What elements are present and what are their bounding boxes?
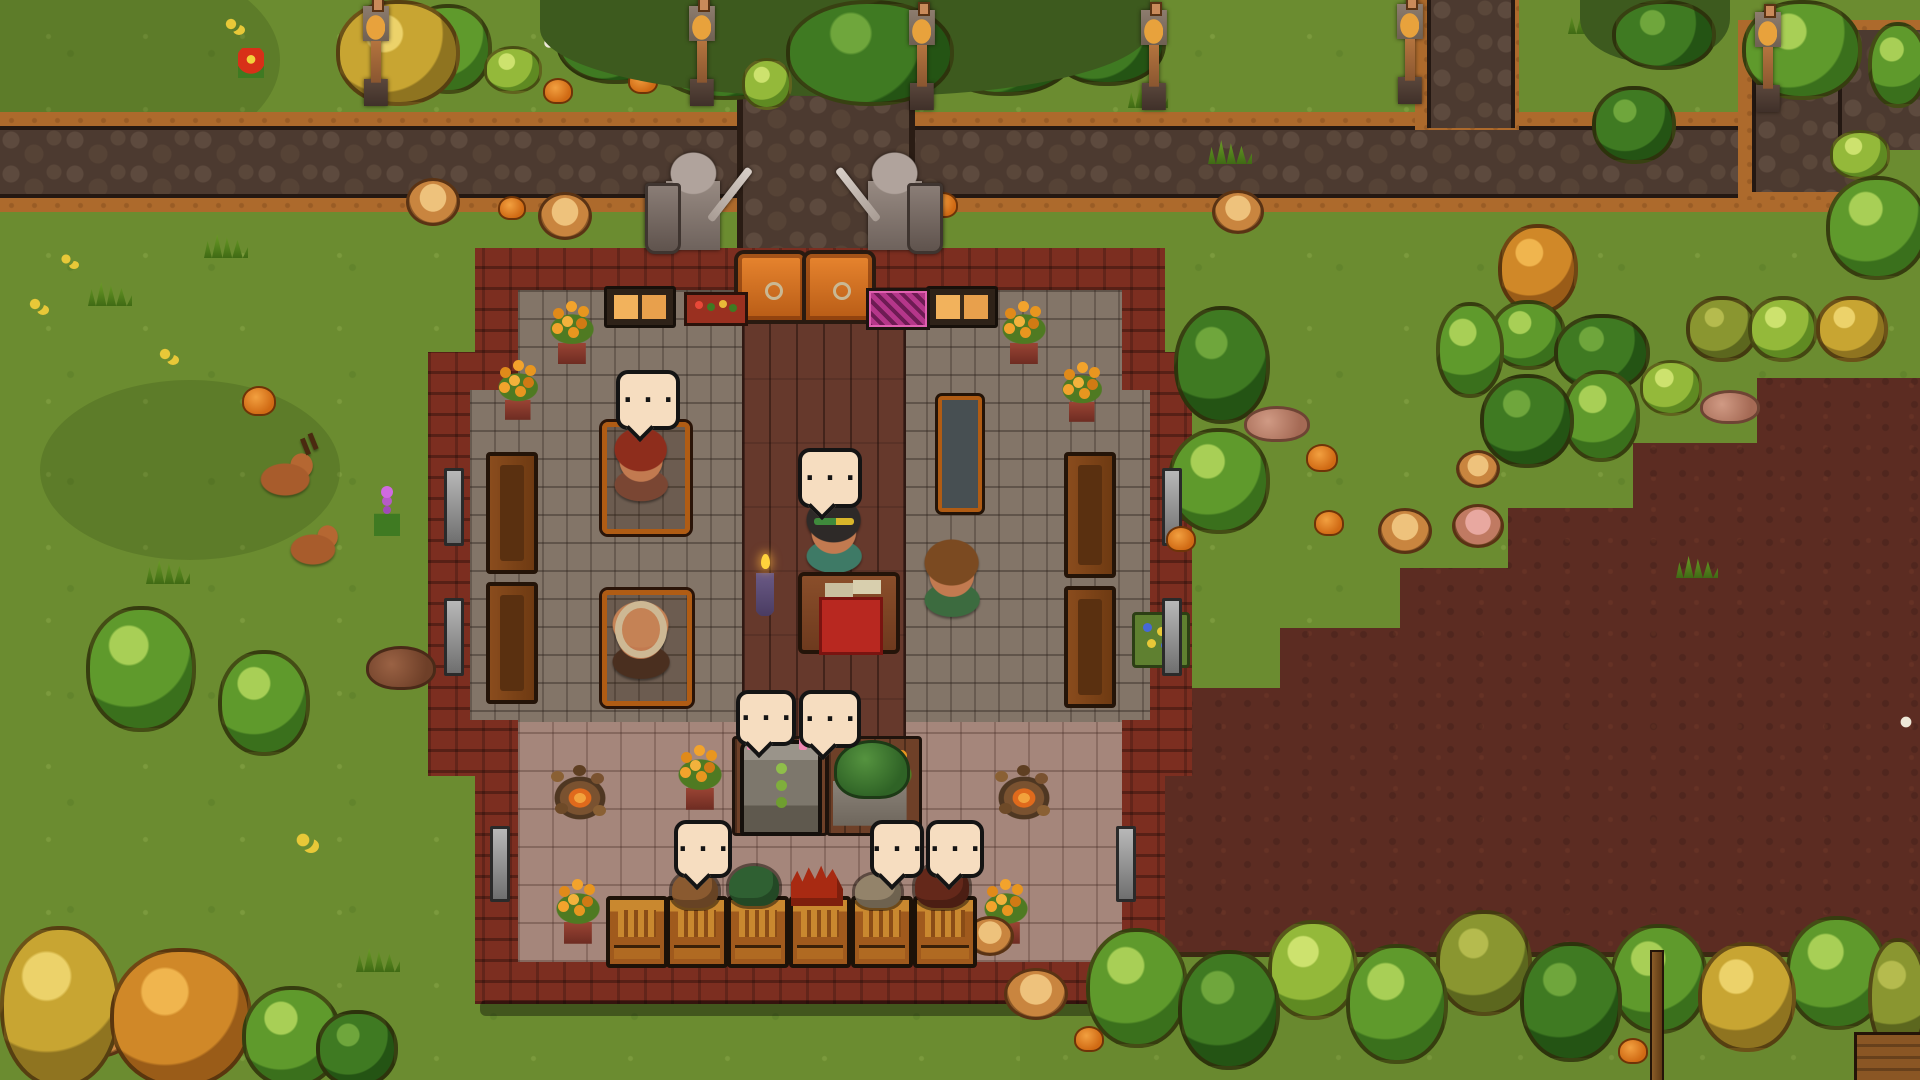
campfire	[542, 766, 618, 830]
mushroom	[543, 78, 573, 104]
bush	[1830, 130, 1890, 180]
customer-bald-npc[interactable]	[610, 598, 672, 682]
tree	[1520, 942, 1622, 1062]
tree-stump	[1378, 508, 1432, 554]
tree	[1816, 296, 1888, 362]
wood-pole	[1650, 950, 1664, 1080]
tree	[1178, 950, 1280, 1070]
speech-bubble: ...	[870, 820, 924, 878]
lamp-post	[904, 6, 940, 110]
entrance-door-right[interactable]	[802, 250, 876, 324]
speech-bubble: ...	[674, 820, 732, 878]
tavern-window	[926, 286, 998, 328]
flower-planter	[684, 292, 748, 326]
deer-fawn[interactable]	[284, 514, 346, 576]
shop-counter[interactable]	[798, 572, 900, 654]
grass-tuft	[356, 946, 400, 972]
tavern-chair[interactable]	[606, 896, 668, 968]
candelabra	[752, 556, 778, 616]
flower-pot	[1060, 360, 1104, 422]
tree	[1480, 374, 1574, 468]
tree-stump	[538, 192, 592, 240]
wall-bench[interactable]	[1064, 452, 1116, 578]
lamp-post	[1750, 8, 1786, 112]
tree	[1868, 22, 1920, 108]
tree	[110, 948, 252, 1080]
flower-pot	[676, 742, 724, 810]
sitting-patron-green[interactable]	[729, 866, 779, 906]
flower-pot	[554, 876, 602, 944]
tree	[1592, 86, 1676, 164]
lamp-post	[684, 2, 720, 106]
grass-tuft	[204, 232, 248, 258]
customer-green-npc[interactable]	[922, 536, 982, 620]
tree	[1174, 306, 1270, 424]
flower-pot	[496, 358, 540, 420]
wall-window-slot	[490, 826, 510, 902]
lamp-post	[358, 2, 394, 106]
tree	[1698, 942, 1796, 1052]
mushroom	[1306, 444, 1338, 472]
wall-bench[interactable]	[486, 452, 538, 574]
bush	[742, 58, 792, 110]
knight-statue-left	[648, 146, 738, 258]
speech-bubble: ...	[799, 690, 861, 748]
mushroom	[1618, 1038, 1648, 1064]
yellow-flowers	[58, 252, 74, 266]
speech-bubble: ...	[736, 690, 796, 746]
wall-window-slot	[444, 468, 464, 546]
wall-window-slot	[1162, 598, 1182, 676]
tavern-chair[interactable]	[789, 896, 851, 968]
tree	[218, 650, 310, 756]
mushroom	[242, 386, 276, 416]
mushroom-stump	[1452, 504, 1504, 548]
deer[interactable]	[254, 442, 322, 508]
tree	[1748, 296, 1818, 362]
tree-stump	[1212, 190, 1264, 234]
poster-sign	[866, 288, 930, 330]
speech-bubble: ...	[798, 448, 862, 508]
wall-window-slot	[444, 598, 464, 676]
rock	[1244, 406, 1310, 442]
tree	[1168, 428, 1270, 534]
tree	[1086, 928, 1188, 1048]
wall-bench[interactable]	[1064, 586, 1116, 708]
rock	[366, 646, 436, 690]
wall-window-slot	[1116, 826, 1136, 902]
tree	[1826, 176, 1920, 280]
lamp-post	[1136, 6, 1172, 110]
yellow-flowers	[156, 346, 174, 362]
mushroom	[498, 196, 526, 220]
red-flower	[238, 48, 264, 78]
grass-tuft	[88, 280, 132, 306]
game-viewport[interactable]: .....................	[0, 0, 1920, 1080]
bush	[1640, 360, 1702, 416]
lupine-flower	[374, 486, 400, 536]
yellow-flowers	[292, 830, 314, 850]
mushroom	[1314, 510, 1344, 536]
mushroom	[1074, 1026, 1104, 1052]
flower-pot	[548, 298, 596, 364]
tree	[336, 0, 460, 106]
tavern-window	[604, 286, 676, 328]
tree	[0, 926, 120, 1080]
tree	[1268, 920, 1358, 1020]
white-flower	[1898, 714, 1914, 730]
tree-stump	[406, 178, 460, 226]
standing-mirror[interactable]	[938, 396, 982, 512]
tavern-chair[interactable]	[727, 896, 789, 968]
tree	[1346, 944, 1448, 1064]
tree-stump	[1456, 450, 1500, 488]
tree	[1612, 0, 1716, 70]
stone-road-branch	[1427, 0, 1515, 128]
yellow-flowers	[222, 16, 240, 32]
speech-bubble: ...	[616, 370, 680, 430]
tree	[1436, 302, 1504, 398]
bush	[484, 46, 542, 94]
tree	[1436, 910, 1532, 1016]
yellow-flowers	[26, 296, 44, 312]
covered-machine[interactable]	[830, 740, 910, 826]
rock	[1700, 390, 1760, 424]
speech-bubble: ...	[926, 820, 984, 878]
wall-bench[interactable]	[486, 582, 538, 704]
crate	[1854, 1032, 1920, 1080]
knight-statue-right	[850, 146, 940, 258]
flower-pot	[1000, 298, 1048, 364]
loom-altar[interactable]	[740, 740, 822, 836]
tree	[316, 1010, 398, 1080]
mushroom	[1166, 526, 1196, 552]
campfire	[986, 766, 1062, 830]
grass-tuft	[146, 558, 190, 584]
tree	[86, 606, 196, 732]
lamp-post	[1392, 0, 1428, 104]
tree-stump	[1004, 968, 1068, 1020]
